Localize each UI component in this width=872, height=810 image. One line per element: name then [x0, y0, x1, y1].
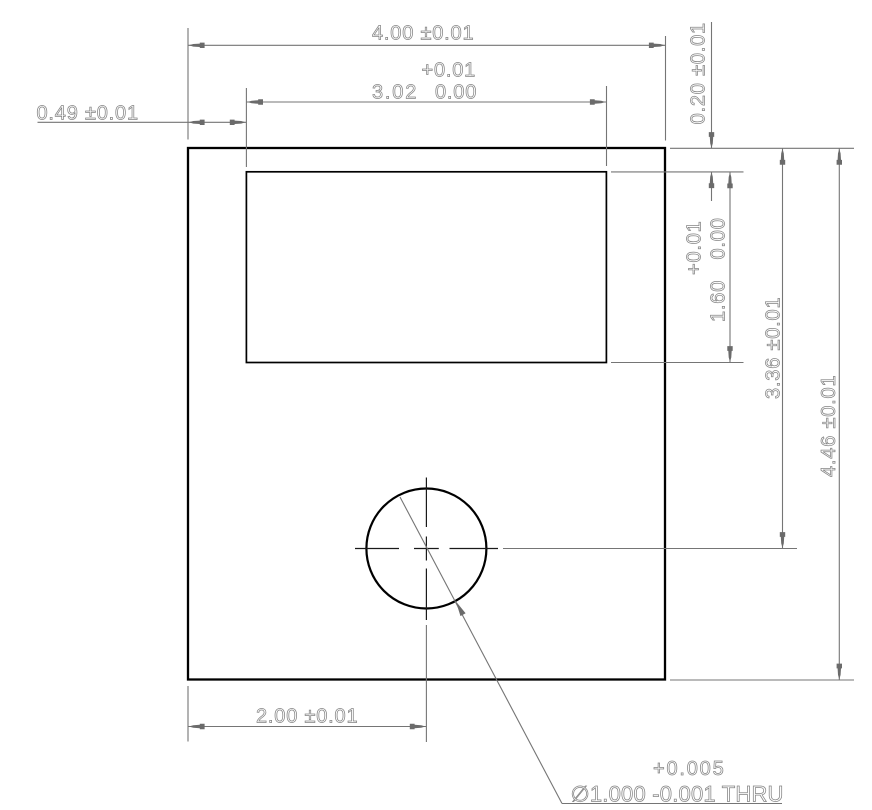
svg-text:0.49 ±0.01: 0.49 ±0.01 — [37, 103, 139, 125]
svg-text:+0.01: +0.01 — [684, 220, 706, 275]
svg-text:3.02: 3.02 — [372, 82, 418, 104]
svg-text:0.00: 0.00 — [707, 217, 729, 259]
svg-text:4.46 ±0.01: 4.46 ±0.01 — [818, 375, 840, 477]
svg-text:1.60: 1.60 — [707, 280, 729, 322]
svg-text:∅1.000 -0.001 THRU: ∅1.000 -0.001 THRU — [571, 782, 784, 807]
svg-text:0.20 ±0.01: 0.20 ±0.01 — [688, 22, 710, 124]
svg-text:+0.01: +0.01 — [422, 60, 477, 82]
svg-text:+0.005: +0.005 — [653, 758, 726, 780]
svg-text:2.00 ±0.01: 2.00 ±0.01 — [256, 706, 358, 728]
svg-text:3.36 ±0.01: 3.36 ±0.01 — [763, 297, 785, 399]
svg-text:0.00: 0.00 — [435, 82, 477, 104]
svg-text:4.00 ±0.01: 4.00 ±0.01 — [372, 23, 474, 45]
